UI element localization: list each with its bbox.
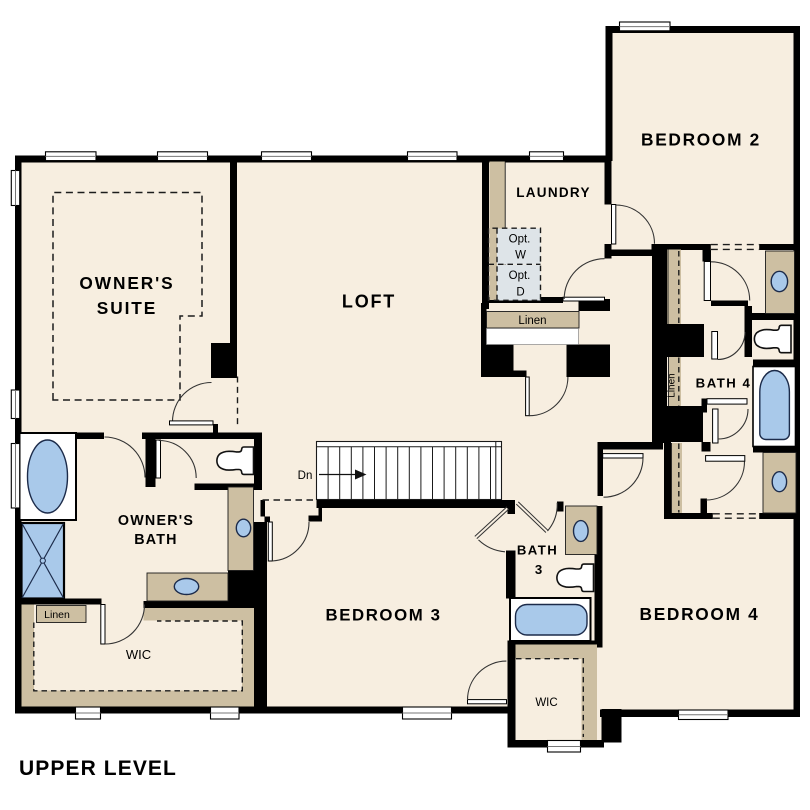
svg-text:UPPER LEVEL: UPPER LEVEL [19,757,177,780]
svg-text:SUITE: SUITE [97,298,157,318]
svg-text:D: D [516,287,524,299]
svg-text:3: 3 [535,562,542,577]
svg-text:BEDROOM 3: BEDROOM 3 [325,606,441,625]
svg-text:LAUNDRY: LAUNDRY [516,185,591,200]
svg-text:BEDROOM 2: BEDROOM 2 [641,130,761,150]
svg-text:Opt.: Opt. [509,270,531,282]
svg-text:Linen: Linen [667,373,678,397]
svg-text:OWNER'S: OWNER'S [118,513,194,529]
svg-text:Opt.: Opt. [509,234,531,246]
svg-text:Dn: Dn [298,470,313,482]
svg-text:LOFT: LOFT [342,292,396,312]
svg-text:BEDROOM 4: BEDROOM 4 [640,604,760,624]
svg-text:BATH: BATH [517,543,558,558]
svg-text:OWNER'S: OWNER'S [79,273,174,293]
svg-text:WIC: WIC [126,647,151,662]
svg-text:Linen: Linen [518,315,546,327]
svg-text:WIC: WIC [535,697,557,709]
svg-text:BATH 4: BATH 4 [696,376,752,391]
svg-text:BATH: BATH [134,532,177,548]
svg-text:Linen: Linen [44,609,70,621]
svg-text:W: W [515,250,526,262]
